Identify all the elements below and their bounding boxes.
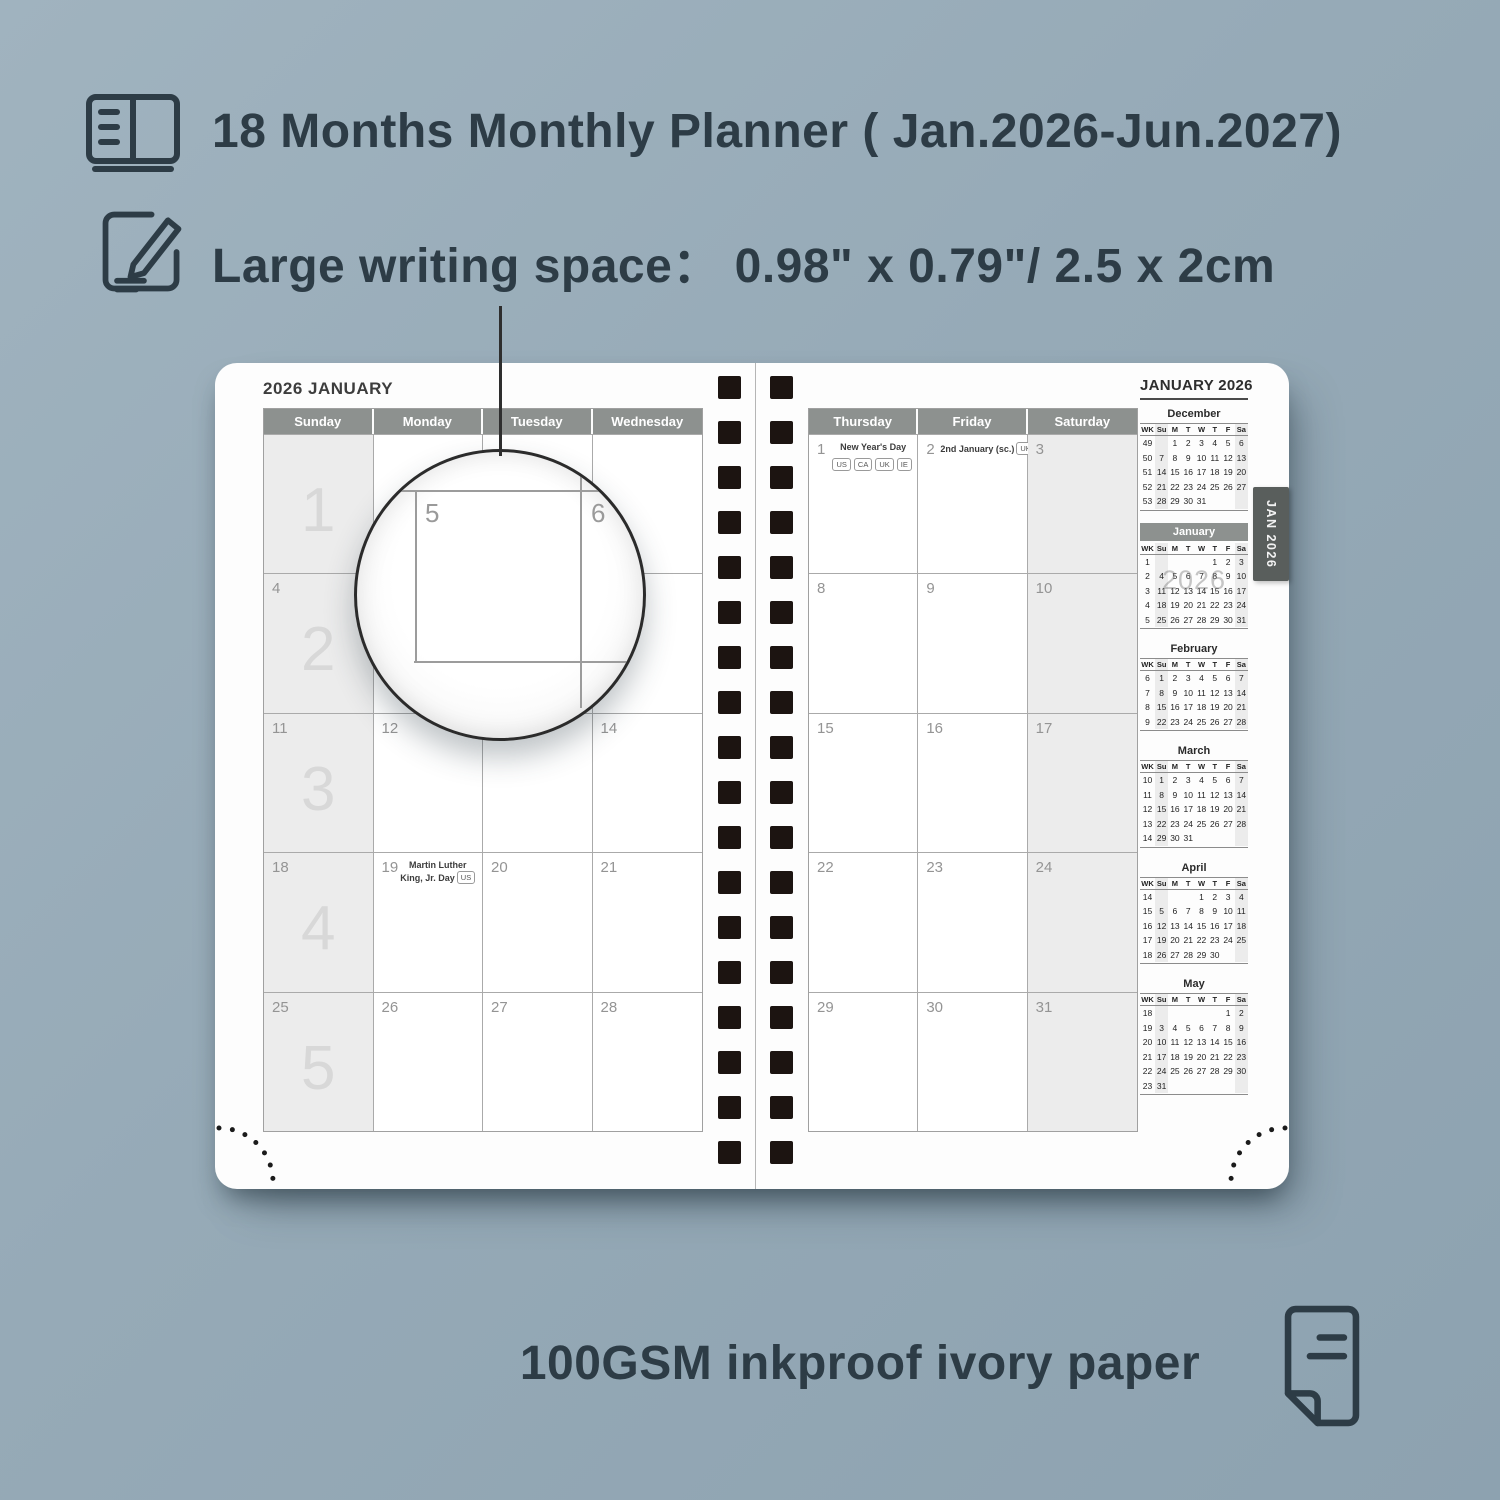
mini-day-cell: 29 bbox=[1221, 1064, 1234, 1079]
mini-head-cell: Su bbox=[1155, 994, 1168, 1005]
mini-head-cell: Su bbox=[1155, 878, 1168, 889]
mini-day-cell: 5 bbox=[1208, 773, 1221, 788]
binding-hole bbox=[718, 1141, 741, 1164]
mini-day-cell bbox=[1195, 1006, 1208, 1021]
mini-day-cell: 25 bbox=[1195, 715, 1208, 730]
mini-week-row: 182627282930 bbox=[1140, 948, 1248, 963]
mini-day-cell: 8 bbox=[1155, 788, 1168, 803]
lens-pointer-line bbox=[499, 306, 502, 456]
mini-day-cell: 30 bbox=[1235, 1064, 1248, 1079]
mini-day-cell: 24 bbox=[1182, 715, 1195, 730]
mini-day-cell: 19 bbox=[1208, 700, 1221, 715]
mini-day-cell: 49 bbox=[1140, 436, 1155, 451]
note-pencil-icon bbox=[94, 204, 190, 300]
mini-day-cell bbox=[1168, 1006, 1181, 1021]
mini-head-cell: W bbox=[1195, 994, 1208, 1005]
day-cell: 19Martin Luther King, Jr. DayUS bbox=[374, 852, 484, 991]
mini-week-row: 922232425262728 bbox=[1140, 715, 1248, 730]
product-infographic: 18 Months Monthly Planner ( Jan.2026-Jun… bbox=[0, 0, 1500, 1500]
day-cell: 27 bbox=[483, 992, 593, 1131]
binding-hole bbox=[718, 916, 741, 939]
mini-week-row: 5078910111213 bbox=[1140, 451, 1248, 466]
mini-head-cell: T bbox=[1208, 878, 1221, 889]
mini-day-cell bbox=[1182, 555, 1195, 570]
mini-week-row: 14293031 bbox=[1140, 831, 1248, 846]
mini-head-cell: M bbox=[1168, 659, 1181, 670]
mini-day-cell: 18 bbox=[1140, 1006, 1155, 1021]
mini-calendar: DecemberWKSuMTWTFSa491234565078910111213… bbox=[1140, 406, 1248, 511]
mini-day-cell: 2 bbox=[1182, 436, 1195, 451]
mini-day-cell: 6 bbox=[1140, 671, 1155, 686]
mini-day-cell: 51 bbox=[1140, 465, 1155, 480]
month-tab-label: JAN 2026 bbox=[1264, 500, 1278, 568]
week-number: 3 bbox=[264, 754, 373, 825]
mini-day-cell: 23 bbox=[1182, 480, 1195, 495]
mini-day-cell: 16 bbox=[1221, 584, 1234, 599]
mini-day-cell: 22 bbox=[1155, 715, 1168, 730]
day-cell: 30 bbox=[918, 992, 1027, 1131]
date-number: 8 bbox=[817, 580, 825, 597]
day-cell: 1 bbox=[264, 434, 374, 573]
mini-day-cell: 53 bbox=[1140, 494, 1155, 509]
country-badge: US bbox=[832, 458, 850, 471]
mini-head-cell: M bbox=[1168, 761, 1181, 772]
mini-day-cell: 2 bbox=[1235, 1006, 1248, 1021]
mini-day-cell: 4 bbox=[1140, 598, 1155, 613]
binding-hole bbox=[770, 556, 793, 579]
mini-day-cell bbox=[1208, 494, 1221, 509]
binding-hole bbox=[718, 556, 741, 579]
mini-day-cell: 24 bbox=[1221, 933, 1234, 948]
mini-day-cell: 10 bbox=[1195, 451, 1208, 466]
mini-day-cell: 12 bbox=[1182, 1035, 1195, 1050]
mini-week-row: 245678910 bbox=[1140, 569, 1248, 584]
country-badge: US bbox=[457, 871, 475, 884]
mini-head-cell: F bbox=[1221, 659, 1234, 670]
mini-day-cell: 19 bbox=[1155, 933, 1168, 948]
mini-day-cell: 16 bbox=[1140, 919, 1155, 934]
mini-day-cell: 19 bbox=[1168, 598, 1181, 613]
mini-day-cell: 19 bbox=[1182, 1050, 1195, 1065]
mini-day-cell: 1 bbox=[1155, 671, 1168, 686]
date-number: 17 bbox=[1036, 720, 1053, 737]
mini-day-cell: 1 bbox=[1208, 555, 1221, 570]
day-cell: 14 bbox=[593, 713, 703, 852]
holiday-label: New Year's Day bbox=[831, 442, 915, 453]
mini-calendar: JanuaryWKSuMTWTFSa1123245678910311121314… bbox=[1140, 523, 1248, 630]
mini-head-cell: WK bbox=[1140, 424, 1155, 435]
mini-day-cell: 24 bbox=[1195, 480, 1208, 495]
mini-head-cell: W bbox=[1195, 659, 1208, 670]
mini-day-cell: 26 bbox=[1155, 948, 1168, 963]
binding-hole bbox=[718, 736, 741, 759]
mini-day-cell: 22 bbox=[1208, 598, 1221, 613]
day-cell: 29 bbox=[809, 992, 918, 1131]
mini-day-cell bbox=[1182, 890, 1195, 905]
mini-week-row: 815161718192021 bbox=[1140, 700, 1248, 715]
mini-day-cell: 5 bbox=[1168, 569, 1181, 584]
mini-week-row: 141234 bbox=[1140, 890, 1248, 905]
date-number: 28 bbox=[601, 999, 618, 1016]
day-header: Friday bbox=[918, 409, 1027, 434]
mini-head-cell: T bbox=[1208, 994, 1221, 1005]
binding-hole bbox=[770, 466, 793, 489]
mini-week-row: 1215161718192021 bbox=[1140, 802, 1248, 817]
mini-day-cell bbox=[1235, 494, 1248, 509]
mini-day-cell: 27 bbox=[1168, 948, 1181, 963]
mini-head-cell: T bbox=[1208, 543, 1221, 554]
day-cell: 26 bbox=[374, 992, 484, 1131]
mini-day-cell: 15 bbox=[1155, 700, 1168, 715]
mini-day-cell: 9 bbox=[1182, 451, 1195, 466]
mini-day-cell: 8 bbox=[1221, 1021, 1234, 1036]
magnifier-lens: 5 6 bbox=[354, 449, 646, 741]
day-cell: 20 bbox=[483, 852, 593, 991]
mini-day-cell: 24 bbox=[1235, 598, 1248, 613]
mini-week-row: 311121314151617 bbox=[1140, 584, 1248, 599]
mini-day-cell: 17 bbox=[1155, 1050, 1168, 1065]
lens-date-number: 5 bbox=[425, 498, 439, 529]
date-number: 14 bbox=[601, 720, 618, 737]
holiday-label: Martin Luther King, Jr. DayUS bbox=[396, 860, 481, 884]
date-number: 26 bbox=[382, 999, 399, 1016]
mini-day-cell: 6 bbox=[1221, 773, 1234, 788]
mini-day-cell: 23 bbox=[1235, 1050, 1248, 1065]
mini-day-cell: 8 bbox=[1195, 904, 1208, 919]
day-cell: 22nd January (sc.)UK bbox=[918, 434, 1027, 573]
mini-head-cell: Sa bbox=[1235, 424, 1248, 435]
mini-head-cell: F bbox=[1221, 424, 1234, 435]
right-month-grid: ThursdayFridaySaturday1New Year's DayUSC… bbox=[808, 408, 1138, 1132]
mini-day-cell: 15 bbox=[1155, 802, 1168, 817]
binding-hole bbox=[770, 601, 793, 624]
mini-day-cell: 21 bbox=[1235, 802, 1248, 817]
mini-day-cell bbox=[1168, 890, 1181, 905]
mini-day-cell bbox=[1155, 555, 1168, 570]
mini-week-row: 2331 bbox=[1140, 1079, 1248, 1094]
mini-day-cell: 15 bbox=[1221, 1035, 1234, 1050]
date-number: 30 bbox=[926, 999, 943, 1016]
mini-weekday-header: WKSuMTWTFSa bbox=[1140, 994, 1248, 1006]
mini-day-cell: 18 bbox=[1140, 948, 1155, 963]
mini-head-cell: F bbox=[1221, 543, 1234, 554]
binding-hole bbox=[718, 511, 741, 534]
mini-day-cell: 9 bbox=[1208, 904, 1221, 919]
day-cell: 15 bbox=[809, 713, 918, 852]
day-cell: 3 bbox=[1028, 434, 1137, 573]
mini-day-cell: 7 bbox=[1140, 686, 1155, 701]
day-cell: 8 bbox=[809, 573, 918, 712]
mini-day-cell bbox=[1235, 948, 1248, 963]
mini-months: DecemberWKSuMTWTFSa491234565078910111213… bbox=[1140, 406, 1248, 1095]
mini-day-cell bbox=[1221, 1079, 1234, 1094]
mini-day-cell bbox=[1208, 1079, 1221, 1094]
binding-hole bbox=[770, 916, 793, 939]
mini-day-cell: 11 bbox=[1195, 686, 1208, 701]
binding-hole bbox=[770, 1096, 793, 1119]
binding-hole bbox=[770, 1006, 793, 1029]
week-number: 4 bbox=[264, 893, 373, 964]
date-number: 2 bbox=[926, 441, 934, 458]
mini-day-cell: 29 bbox=[1195, 948, 1208, 963]
mini-day-cell: 12 bbox=[1155, 919, 1168, 934]
mini-week-row: 101234567 bbox=[1140, 773, 1248, 788]
mini-weekday-header: WKSuMTWTFSa bbox=[1140, 761, 1248, 773]
binding-hole bbox=[770, 736, 793, 759]
mini-calendar: AprilWKSuMTWTFSa141234155678910111612131… bbox=[1140, 860, 1248, 965]
mini-day-cell: 18 bbox=[1168, 1050, 1181, 1065]
mini-day-cell: 13 bbox=[1235, 451, 1248, 466]
mini-day-cell: 17 bbox=[1182, 700, 1195, 715]
mini-day-cell: 12 bbox=[1208, 788, 1221, 803]
mini-week-row: 7891011121314 bbox=[1140, 686, 1248, 701]
mini-head-cell: W bbox=[1195, 424, 1208, 435]
mini-day-cell: 20 bbox=[1168, 933, 1181, 948]
mini-day-cell: 19 bbox=[1140, 1021, 1155, 1036]
mini-calendar: MarchWKSuMTWTFSa101234567118910111213141… bbox=[1140, 743, 1248, 848]
mini-day-cell: 21 bbox=[1140, 1050, 1155, 1065]
mini-head-cell: Su bbox=[1155, 761, 1168, 772]
mini-week-row: 1719202122232425 bbox=[1140, 933, 1248, 948]
mini-day-cell: 25 bbox=[1195, 817, 1208, 832]
mini-day-cell: 9 bbox=[1235, 1021, 1248, 1036]
mini-day-cell: 3 bbox=[1182, 671, 1195, 686]
day-cell: 10 bbox=[1028, 573, 1137, 712]
mini-head-cell: Sa bbox=[1235, 761, 1248, 772]
date-number: 25 bbox=[272, 999, 289, 1016]
mini-day-cell: 4 bbox=[1208, 436, 1221, 451]
mini-day-cell: 5 bbox=[1140, 613, 1155, 628]
mini-day-cell: 6 bbox=[1195, 1021, 1208, 1036]
mini-head-cell: M bbox=[1168, 994, 1181, 1005]
mini-day-cell: 7 bbox=[1195, 569, 1208, 584]
mini-day-cell: 16 bbox=[1208, 919, 1221, 934]
day-header: Sunday bbox=[264, 409, 374, 434]
date-number: 4 bbox=[272, 580, 280, 597]
mini-day-cell: 19 bbox=[1208, 802, 1221, 817]
mini-week-row: 193456789 bbox=[1140, 1021, 1248, 1036]
mini-day-cell: 14 bbox=[1140, 890, 1155, 905]
mini-head-cell: Su bbox=[1155, 543, 1168, 554]
mini-day-cell: 18 bbox=[1155, 598, 1168, 613]
mini-day-cell: 3 bbox=[1182, 773, 1195, 788]
mini-day-cell: 23 bbox=[1221, 598, 1234, 613]
mini-day-cell: 14 bbox=[1140, 831, 1155, 846]
mini-week-row: 61234567 bbox=[1140, 671, 1248, 686]
mini-head-cell: M bbox=[1168, 543, 1181, 554]
mini-day-cell: 12 bbox=[1140, 802, 1155, 817]
mini-day-cell: 8 bbox=[1155, 686, 1168, 701]
mini-head-cell: Su bbox=[1155, 424, 1168, 435]
date-number: 29 bbox=[817, 999, 834, 1016]
lens-grid-line bbox=[580, 460, 582, 708]
mini-day-cell: 16 bbox=[1168, 802, 1181, 817]
mini-day-cell: 21 bbox=[1182, 933, 1195, 948]
mini-day-cell bbox=[1195, 555, 1208, 570]
mini-day-cell: 15 bbox=[1208, 584, 1221, 599]
date-number: 21 bbox=[601, 859, 618, 876]
mini-week-row: 2117181920212223 bbox=[1140, 1050, 1248, 1065]
mini-day-cell: 4 bbox=[1168, 1021, 1181, 1036]
mini-calendar: FebruaryWKSuMTWTFSa612345677891011121314… bbox=[1140, 641, 1248, 731]
mini-day-cell: 5 bbox=[1221, 436, 1234, 451]
mini-day-cell: 3 bbox=[1140, 584, 1155, 599]
mini-day-cell: 4 bbox=[1235, 890, 1248, 905]
mini-day-cell: 7 bbox=[1235, 671, 1248, 686]
mini-day-cell: 17 bbox=[1195, 465, 1208, 480]
mini-day-cell: 28 bbox=[1155, 494, 1168, 509]
date-number: 23 bbox=[926, 859, 943, 876]
mini-day-cell: 5 bbox=[1208, 671, 1221, 686]
mini-day-cell: 6 bbox=[1235, 436, 1248, 451]
binding-hole bbox=[718, 646, 741, 669]
mini-head-cell: M bbox=[1168, 424, 1181, 435]
mini-day-cell: 10 bbox=[1182, 788, 1195, 803]
mini-head-cell: W bbox=[1195, 761, 1208, 772]
feature-paper: 100GSM inkproof ivory paper bbox=[470, 1336, 1250, 1391]
mini-week-row: 5114151617181920 bbox=[1140, 465, 1248, 480]
mini-day-cell: 20 bbox=[1235, 465, 1248, 480]
mini-day-cell: 9 bbox=[1168, 788, 1181, 803]
mini-day-cell: 2 bbox=[1140, 569, 1155, 584]
mini-day-cell: 4 bbox=[1195, 773, 1208, 788]
mini-day-cell: 25 bbox=[1168, 1064, 1181, 1079]
mini-day-cell: 23 bbox=[1168, 715, 1181, 730]
mini-day-cell bbox=[1221, 948, 1234, 963]
mini-day-cell: 11 bbox=[1208, 451, 1221, 466]
mini-head-cell: WK bbox=[1140, 659, 1155, 670]
day-cell: 28 bbox=[593, 992, 703, 1131]
mini-weekday-header: WKSuMTWTFSa bbox=[1140, 424, 1248, 436]
country-badges: USCAUKIE bbox=[831, 458, 913, 471]
mini-day-cell bbox=[1182, 1079, 1195, 1094]
mini-day-cell: 27 bbox=[1221, 817, 1234, 832]
mini-day-cell: 8 bbox=[1208, 569, 1221, 584]
mini-day-cell: 2 bbox=[1221, 555, 1234, 570]
mini-day-cell: 19 bbox=[1221, 465, 1234, 480]
binding-hole bbox=[718, 1096, 741, 1119]
mini-day-cell: 27 bbox=[1195, 1064, 1208, 1079]
mini-day-cell: 11 bbox=[1195, 788, 1208, 803]
mini-day-cell: 31 bbox=[1195, 494, 1208, 509]
date-number: 10 bbox=[1036, 580, 1053, 597]
mini-day-cell: 13 bbox=[1182, 584, 1195, 599]
mini-day-cell: 25 bbox=[1235, 933, 1248, 948]
mini-day-cell: 30 bbox=[1208, 948, 1221, 963]
mini-day-cell: 15 bbox=[1168, 465, 1181, 480]
mini-day-cell: 20 bbox=[1221, 700, 1234, 715]
mini-day-cell: 20 bbox=[1195, 1050, 1208, 1065]
mini-day-cell: 3 bbox=[1155, 1021, 1168, 1036]
spiral-binding-left bbox=[718, 376, 741, 1164]
date-number: 24 bbox=[1036, 859, 1053, 876]
mini-day-cell: 29 bbox=[1208, 613, 1221, 628]
binding-hole bbox=[770, 961, 793, 984]
mini-day-cell: 10 bbox=[1235, 569, 1248, 584]
binding-hole bbox=[770, 1141, 793, 1164]
mini-week-row: 2010111213141516 bbox=[1140, 1035, 1248, 1050]
mini-day-cell: 52 bbox=[1140, 480, 1155, 495]
mini-day-cell: 12 bbox=[1221, 451, 1234, 466]
mini-day-cell bbox=[1195, 1079, 1208, 1094]
mini-day-cell bbox=[1235, 831, 1248, 846]
lens-grid-line bbox=[415, 490, 417, 661]
binding-hole bbox=[770, 826, 793, 849]
date-number: 16 bbox=[926, 720, 943, 737]
binding-hole bbox=[718, 466, 741, 489]
mini-day-cell: 12 bbox=[1208, 686, 1221, 701]
mini-day-cell: 26 bbox=[1208, 715, 1221, 730]
mini-week-row: 2224252627282930 bbox=[1140, 1064, 1248, 1079]
mini-day-cell: 13 bbox=[1140, 817, 1155, 832]
mini-day-cell: 1 bbox=[1195, 890, 1208, 905]
day-cell: 16 bbox=[918, 713, 1027, 852]
binding-hole bbox=[718, 376, 741, 399]
lens-grid-line bbox=[357, 490, 643, 492]
page-divider bbox=[755, 363, 756, 1189]
mini-day-cell: 17 bbox=[1182, 802, 1195, 817]
date-number: 1 bbox=[817, 441, 825, 458]
week-number: 5 bbox=[264, 1033, 373, 1104]
mini-day-cell: 9 bbox=[1168, 686, 1181, 701]
mini-day-cell: 2 bbox=[1168, 773, 1181, 788]
day-cell: 184 bbox=[264, 852, 374, 991]
mini-head-cell: Su bbox=[1155, 659, 1168, 670]
mini-day-cell: 21 bbox=[1155, 480, 1168, 495]
mini-head-cell: T bbox=[1208, 659, 1221, 670]
mini-day-cell: 14 bbox=[1182, 919, 1195, 934]
mini-day-cell: 6 bbox=[1221, 671, 1234, 686]
date-number: 9 bbox=[926, 580, 934, 597]
mini-day-cell: 1 bbox=[1168, 436, 1181, 451]
mini-day-cell: 30 bbox=[1182, 494, 1195, 509]
mini-head-cell: T bbox=[1182, 761, 1195, 772]
mini-day-cell: 11 bbox=[1168, 1035, 1181, 1050]
mini-week-row: 1812 bbox=[1140, 1006, 1248, 1021]
mini-day-cell: 14 bbox=[1208, 1035, 1221, 1050]
mini-day-cell: 22 bbox=[1168, 480, 1181, 495]
mini-day-cell bbox=[1208, 1006, 1221, 1021]
mini-day-cell: 29 bbox=[1168, 494, 1181, 509]
country-badge: UK bbox=[875, 458, 893, 471]
right-page-title: JANUARY 2026 bbox=[1140, 377, 1248, 400]
mini-day-cell: 28 bbox=[1182, 948, 1195, 963]
date-number: 3 bbox=[1036, 441, 1044, 458]
mini-day-cell: 1 bbox=[1155, 773, 1168, 788]
mini-day-cell: 31 bbox=[1235, 613, 1248, 628]
mini-day-cell: 22 bbox=[1140, 1064, 1155, 1079]
binding-hole bbox=[770, 871, 793, 894]
mini-head-cell: W bbox=[1195, 543, 1208, 554]
binding-hole bbox=[718, 601, 741, 624]
binding-hole bbox=[770, 421, 793, 444]
corner-perforation-dots-right bbox=[1219, 1116, 1291, 1188]
mini-head-cell: WK bbox=[1140, 994, 1155, 1005]
mini-day-cell: 17 bbox=[1221, 919, 1234, 934]
mini-day-cell: 23 bbox=[1208, 933, 1221, 948]
mini-week-row: 418192021222324 bbox=[1140, 598, 1248, 613]
country-badge: IE bbox=[897, 458, 912, 471]
mini-weekday-header: WKSuMTWTFSa bbox=[1140, 659, 1248, 671]
mini-month-title: January bbox=[1140, 523, 1248, 541]
mini-week-row: 5221222324252627 bbox=[1140, 480, 1248, 495]
day-header: Wednesday bbox=[593, 409, 703, 434]
mini-day-cell: 15 bbox=[1195, 919, 1208, 934]
mini-day-cell: 23 bbox=[1168, 817, 1181, 832]
mini-day-cell: 25 bbox=[1208, 480, 1221, 495]
feature-writing-space: Large writing space： 0.98" x 0.79"/ 2.5 … bbox=[212, 226, 1275, 296]
mini-day-cell: 24 bbox=[1155, 1064, 1168, 1079]
